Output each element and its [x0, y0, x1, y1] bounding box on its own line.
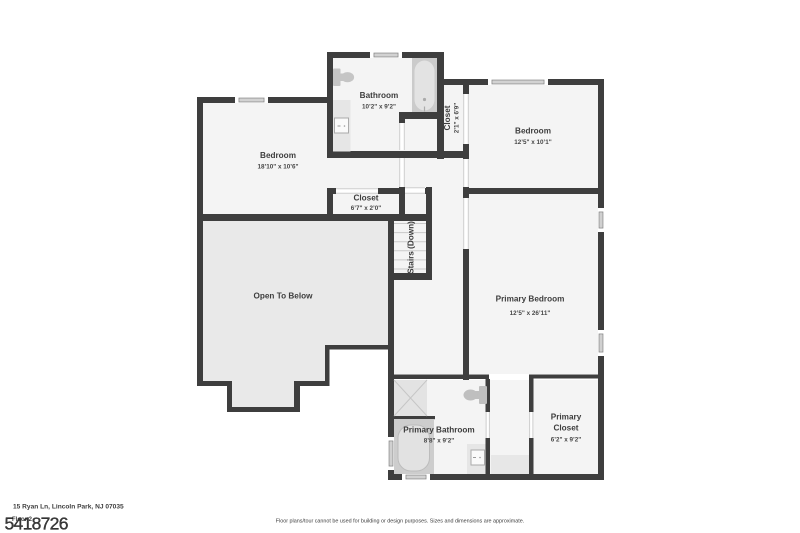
svg-text:Closet: Closet [353, 194, 378, 203]
svg-text:Closet: Closet [443, 105, 452, 130]
svg-text:18’10" x 10’6": 18’10" x 10’6" [258, 164, 299, 171]
svg-text:6’2" x 9’2": 6’2" x 9’2" [551, 437, 581, 444]
svg-text:10’2" x 9’2": 10’2" x 9’2" [362, 104, 396, 111]
svg-text:Floor plans/tour cannot be use: Floor plans/tour cannot be used for buil… [276, 519, 524, 525]
svg-text:Primary: Primary [551, 413, 582, 422]
svg-text:Primary Bathroom: Primary Bathroom [403, 426, 474, 435]
svg-text:Open To Below: Open To Below [254, 292, 314, 301]
svg-text:5418726: 5418726 [5, 514, 68, 533]
svg-text:Primary Bedroom: Primary Bedroom [496, 295, 565, 304]
svg-text:2’1" x 6’9": 2’1" x 6’9" [454, 103, 461, 133]
svg-text:Closet: Closet [553, 424, 578, 433]
svg-text:6’7" x 2’0": 6’7" x 2’0" [351, 205, 381, 212]
svg-text:12’5" x 26’11": 12’5" x 26’11" [510, 310, 551, 317]
svg-text:15 Ryan Ln, Lincoln Park, NJ 0: 15 Ryan Ln, Lincoln Park, NJ 07035 [13, 504, 124, 511]
svg-text:Bathroom: Bathroom [360, 91, 399, 100]
svg-text:8’8" x 9’2": 8’8" x 9’2" [424, 438, 454, 445]
svg-text:Bedroom: Bedroom [260, 151, 296, 160]
svg-text:Stairs (Down): Stairs (Down) [407, 221, 416, 274]
svg-text:Bedroom: Bedroom [515, 127, 551, 136]
svg-text:12’5" x 10’1": 12’5" x 10’1" [514, 139, 551, 146]
